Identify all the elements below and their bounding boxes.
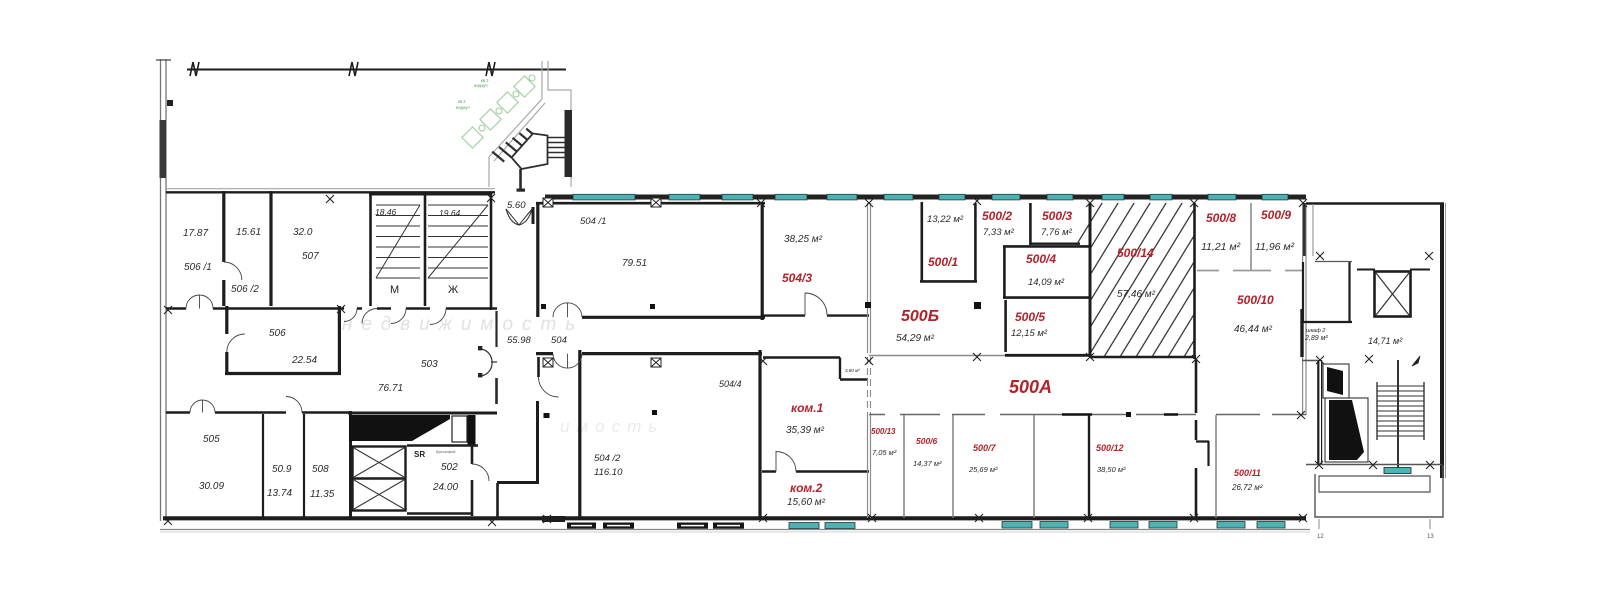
svg-text:500/13: 500/13	[871, 427, 896, 436]
svg-text:500/1: 500/1	[928, 255, 958, 269]
svg-text:500/4: 500/4	[1026, 252, 1056, 266]
svg-text:5.60: 5.60	[507, 200, 526, 211]
svg-text:11.35: 11.35	[310, 489, 335, 500]
svg-text:13: 13	[1427, 534, 1434, 540]
svg-text:46,44 м²: 46,44 м²	[1234, 324, 1273, 335]
svg-text:505: 505	[203, 434, 220, 445]
svg-text:15.61: 15.61	[236, 227, 261, 238]
svg-text:7,33 м²: 7,33 м²	[983, 227, 1015, 238]
svg-text:500/11: 500/11	[1234, 468, 1261, 478]
svg-text:38,25 м²: 38,25 м²	[784, 234, 823, 245]
svg-text:54,29 м²: 54,29 м²	[896, 333, 935, 344]
svg-text:504/3: 504/3	[782, 271, 812, 285]
svg-text:2,89 м²: 2,89 м²	[1304, 335, 1328, 342]
svg-text:500Б: 500Б	[901, 308, 939, 325]
svg-text:11,96 м²: 11,96 м²	[1255, 241, 1295, 253]
svg-text:14,37 м²: 14,37 м²	[913, 459, 942, 468]
svg-text:55.98: 55.98	[507, 335, 531, 346]
svg-text:19.64: 19.64	[439, 208, 461, 218]
svg-text:500/3: 500/3	[1042, 209, 1072, 223]
svg-text:25,69 м²: 25,69 м²	[968, 465, 998, 474]
svg-text:506 /1: 506 /1	[184, 262, 212, 273]
svg-text:116.10: 116.10	[594, 467, 623, 478]
svg-text:недоуч: недоуч	[474, 83, 488, 88]
svg-text:22.54: 22.54	[291, 355, 317, 366]
svg-text:11,21 м²: 11,21 м²	[1201, 241, 1241, 253]
svg-text:Кухн.клфнй: Кухн.клфнй	[436, 450, 455, 454]
svg-text:506: 506	[269, 328, 286, 339]
svg-text:32.0: 32.0	[293, 227, 313, 238]
svg-text:14,71 м²: 14,71 м²	[1368, 336, 1403, 346]
svg-text:30.09: 30.09	[199, 481, 224, 492]
svg-text:504 /1: 504 /1	[580, 216, 606, 227]
svg-text:38,50 м²: 38,50 м²	[1097, 465, 1126, 474]
svg-text:18.46: 18.46	[375, 207, 397, 217]
svg-text:507: 507	[302, 251, 319, 262]
svg-text:500А: 500А	[1009, 377, 1052, 397]
svg-text:недвижимость: недвижимость	[342, 314, 584, 335]
svg-text:Ж: Ж	[448, 284, 458, 296]
svg-text:26,72 м²: 26,72 м²	[1231, 483, 1263, 492]
svg-text:17.87: 17.87	[183, 228, 208, 239]
svg-text:500/5: 500/5	[1015, 310, 1045, 324]
svg-text:500/8: 500/8	[1206, 211, 1236, 225]
svg-text:ком.2: ком.2	[790, 481, 823, 495]
svg-text:504 /2: 504 /2	[594, 453, 621, 464]
svg-text:13.74: 13.74	[267, 488, 292, 499]
svg-text:500/14: 500/14	[1117, 246, 1154, 260]
svg-text:504/4: 504/4	[719, 379, 742, 389]
svg-text:57,46 м²: 57,46 м²	[1117, 289, 1156, 300]
svg-text:15,60 м²: 15,60 м²	[787, 497, 826, 508]
svg-text:SR: SR	[414, 450, 425, 459]
svg-text:7,76 м²: 7,76 м²	[1041, 227, 1073, 238]
svg-text:508: 508	[312, 464, 329, 475]
svg-text:503: 503	[421, 359, 438, 370]
svg-text:35,39 м²: 35,39 м²	[786, 425, 825, 436]
svg-text:500/2: 500/2	[982, 209, 1012, 223]
svg-text:502: 502	[441, 462, 458, 473]
svg-text:3,80 м²: 3,80 м²	[845, 368, 860, 373]
svg-text:500/12: 500/12	[1096, 443, 1124, 453]
svg-text:ком.1: ком.1	[791, 401, 824, 415]
svg-text:имость: имость	[560, 417, 664, 436]
svg-text:14,09 м²: 14,09 м²	[1028, 277, 1065, 288]
svg-text:500/9: 500/9	[1261, 208, 1291, 222]
svg-text:50.9: 50.9	[272, 464, 292, 475]
svg-text:79.51: 79.51	[622, 258, 647, 269]
svg-text:кв 2: кв 2	[458, 99, 466, 104]
svg-text:М: М	[390, 284, 399, 296]
svg-text:76.71: 76.71	[378, 383, 403, 394]
svg-text:500/10: 500/10	[1237, 293, 1274, 307]
svg-text:500/7: 500/7	[973, 443, 997, 453]
svg-text:12,15 м²: 12,15 м²	[1011, 328, 1048, 339]
svg-text:шкаф 2: шкаф 2	[1306, 328, 1325, 334]
svg-text:500/6: 500/6	[916, 436, 938, 446]
svg-text:недоуч: недоуч	[456, 105, 470, 110]
svg-text:506 /2: 506 /2	[231, 284, 259, 295]
svg-text:7,05 м²: 7,05 м²	[872, 448, 897, 457]
svg-text:13,22 м²: 13,22 м²	[927, 214, 964, 225]
svg-text:504: 504	[551, 335, 567, 346]
svg-text:24.00: 24.00	[432, 482, 458, 493]
svg-text:12: 12	[1317, 534, 1324, 540]
